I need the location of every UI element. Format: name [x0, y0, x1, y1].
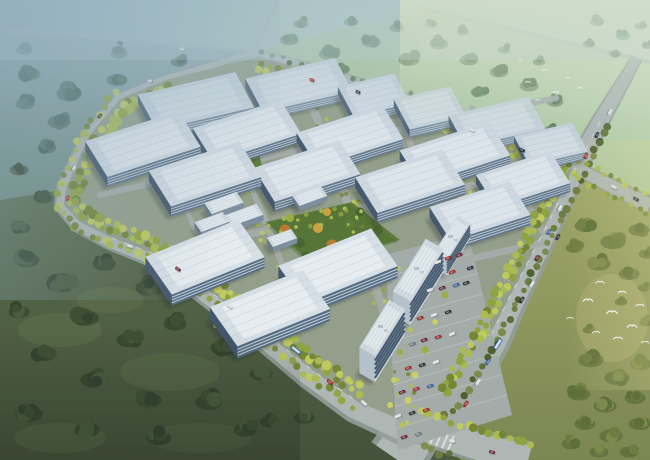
aerial-rendering	[0, 0, 650, 460]
scene-frame	[0, 0, 650, 460]
atmosphere-haze	[0, 0, 650, 460]
haze-layer	[0, 0, 650, 460]
